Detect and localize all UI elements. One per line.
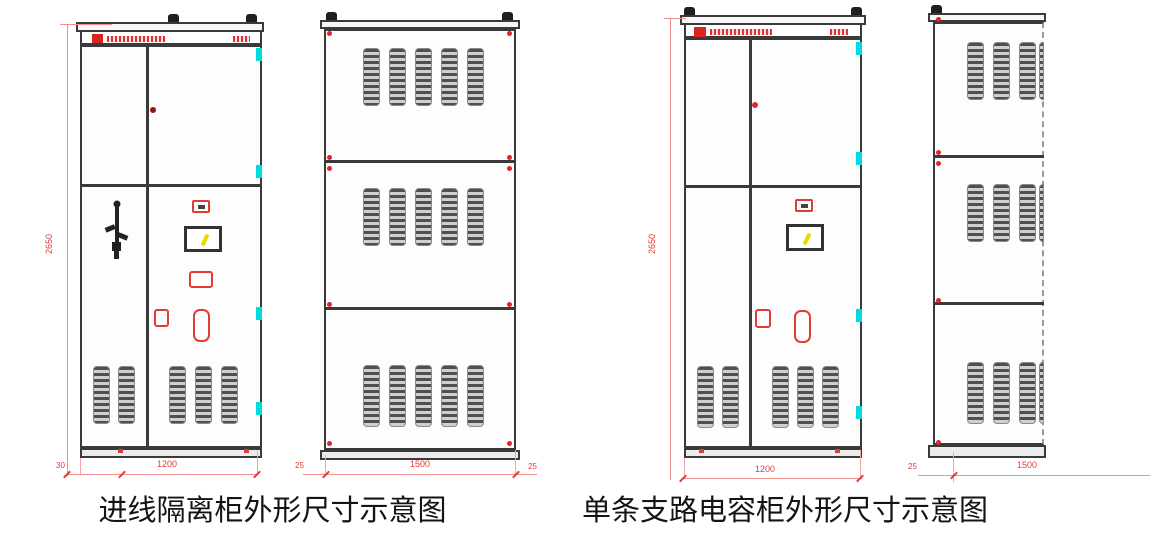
cabinet-base: [928, 445, 1046, 458]
dim-extension-top: [664, 18, 686, 19]
dim-line-height: [670, 18, 671, 480]
dim-extension: [80, 458, 81, 475]
cabinet-top-cap: [320, 20, 520, 29]
lock-dot: [150, 107, 156, 113]
door-hinge: [856, 309, 862, 322]
label-mark: [198, 205, 205, 209]
vent-louver: [993, 184, 1010, 242]
door-hinge: [256, 307, 262, 320]
corner-marker: [507, 155, 512, 160]
small-indicator-plate: [755, 309, 771, 328]
nameplate-code-text: [830, 29, 848, 35]
label-mark: [801, 204, 808, 208]
vent-louver: [993, 42, 1010, 100]
corner-marker: [327, 302, 332, 307]
vent-louver-clipped: [1039, 184, 1044, 242]
section-divider: [684, 185, 862, 188]
vent-louver-band: [363, 188, 484, 246]
brand-logo-block: [694, 27, 706, 37]
vent-louver: [389, 365, 406, 427]
door-hinge: [256, 48, 262, 61]
corner-marker: [507, 166, 512, 171]
vent-louver-band: [363, 365, 484, 427]
corner-marker: [507, 302, 512, 307]
small-indicator-plate: [154, 309, 169, 327]
corner-marker: [327, 166, 332, 171]
label-plate: [795, 199, 813, 212]
corner-marker: [507, 441, 512, 446]
dim-line-width: [66, 474, 258, 475]
vent-louver-clipped: [1039, 42, 1044, 100]
vent-louver: [1019, 184, 1036, 242]
vent-louver: [697, 366, 714, 428]
dim-tick: [856, 475, 864, 483]
vent-louver: [93, 366, 110, 424]
corner-marker: [936, 440, 941, 445]
disconnect-switch-handle-icon: [102, 198, 130, 262]
nameplate-text: [710, 29, 772, 35]
dim-label-width: 1200: [147, 459, 187, 469]
vent-louver-band: [967, 362, 1036, 424]
plinth-tick: [244, 449, 249, 453]
vent-louver-band: [697, 366, 739, 428]
nameplate-code-text: [233, 36, 250, 42]
plinth-tick: [118, 449, 123, 453]
door-hinge: [856, 406, 862, 419]
panel-divider: [324, 307, 516, 310]
door-hinge: [256, 402, 262, 415]
vent-louver: [967, 184, 984, 242]
vent-louver-band: [363, 48, 484, 106]
vent-louver-band: [967, 42, 1036, 100]
dim-label-width: 1200: [745, 464, 785, 474]
corner-marker: [936, 298, 941, 303]
section-divider: [80, 184, 262, 187]
corner-marker: [936, 150, 941, 155]
door-divider: [749, 38, 752, 448]
caption-capacitor-cabinet: 单条支路电容柜外形尺寸示意图: [565, 493, 1005, 529]
vent-louver: [467, 188, 484, 246]
dim-label-height: 2650: [44, 210, 54, 254]
cabinet-base: [80, 448, 262, 458]
door-hinge: [256, 165, 262, 178]
vent-louver: [221, 366, 238, 424]
vent-louver: [415, 48, 432, 106]
vent-louver: [195, 366, 212, 424]
vent-louver-clipped: [1039, 362, 1044, 424]
caption-incoming-cabinet: 进线隔离柜外形尺寸示意图: [95, 493, 450, 529]
corner-marker: [327, 31, 332, 36]
door-divider: [146, 45, 149, 448]
vent-louver: [967, 42, 984, 100]
button-plate: [189, 271, 213, 288]
vent-louver: [389, 48, 406, 106]
indicator-needle-icon: [803, 233, 812, 246]
nameplate-text: [107, 36, 165, 42]
vent-louver: [118, 366, 135, 424]
dim-label-height: 2650: [647, 210, 657, 254]
plinth-tick: [835, 449, 840, 453]
dim-label-offset: 25: [528, 462, 537, 471]
door-hinge: [856, 152, 862, 165]
panel-divider: [933, 155, 1044, 158]
vent-louver: [415, 188, 432, 246]
vent-louver: [363, 188, 380, 246]
vent-louver: [389, 188, 406, 246]
vent-louver: [441, 188, 458, 246]
vent-louver: [1019, 362, 1036, 424]
label-plate: [192, 200, 210, 213]
vent-louver: [441, 48, 458, 106]
vent-louver: [467, 48, 484, 106]
panel-divider: [324, 160, 516, 163]
meter-window: [786, 224, 824, 251]
dim-label-offset: 25: [908, 462, 917, 471]
vent-louver: [467, 365, 484, 427]
vent-louver-band: [93, 366, 135, 424]
panel-divider: [933, 302, 1044, 305]
dim-line-width: [682, 478, 862, 479]
vent-louver: [993, 362, 1010, 424]
vent-louver: [169, 366, 186, 424]
vent-louver: [363, 48, 380, 106]
keyhole-plate: [794, 310, 811, 343]
dim-label-depth: 1500: [1005, 460, 1049, 470]
dim-label-offset: 30: [56, 461, 65, 470]
vent-louver-band: [169, 366, 238, 424]
corner-marker: [936, 17, 941, 22]
brand-logo-block: [92, 34, 103, 43]
vent-louver: [797, 366, 814, 428]
cabinet-top-cap: [680, 15, 866, 25]
vent-louver: [363, 365, 380, 427]
dim-label-offset: 25: [295, 461, 304, 470]
cabinet-top-cap: [928, 13, 1046, 22]
meter-window: [184, 226, 222, 252]
vent-louver: [441, 365, 458, 427]
corner-marker: [936, 161, 941, 166]
vent-louver: [722, 366, 739, 428]
dim-label-depth: 1500: [398, 459, 442, 469]
indicator-needle-icon: [201, 234, 210, 247]
corner-marker: [507, 31, 512, 36]
keyhole-plate: [193, 309, 210, 342]
vent-louver: [967, 362, 984, 424]
lock-dot: [752, 102, 758, 108]
vent-louver-band: [772, 366, 839, 428]
dim-tick: [253, 471, 261, 479]
door-hinge: [856, 42, 862, 55]
drawing-canvas: 2650 30 1200 25 1500 25: [0, 0, 1162, 536]
vent-louver: [415, 365, 432, 427]
vent-louver: [772, 366, 789, 428]
vent-louver: [1019, 42, 1036, 100]
plinth-tick: [699, 449, 704, 453]
vent-louver: [822, 366, 839, 428]
dim-line-depth: [303, 474, 537, 475]
corner-marker: [327, 441, 332, 446]
vent-louver-band: [967, 184, 1036, 242]
corner-marker: [327, 155, 332, 160]
dim-line-height: [67, 24, 68, 476]
